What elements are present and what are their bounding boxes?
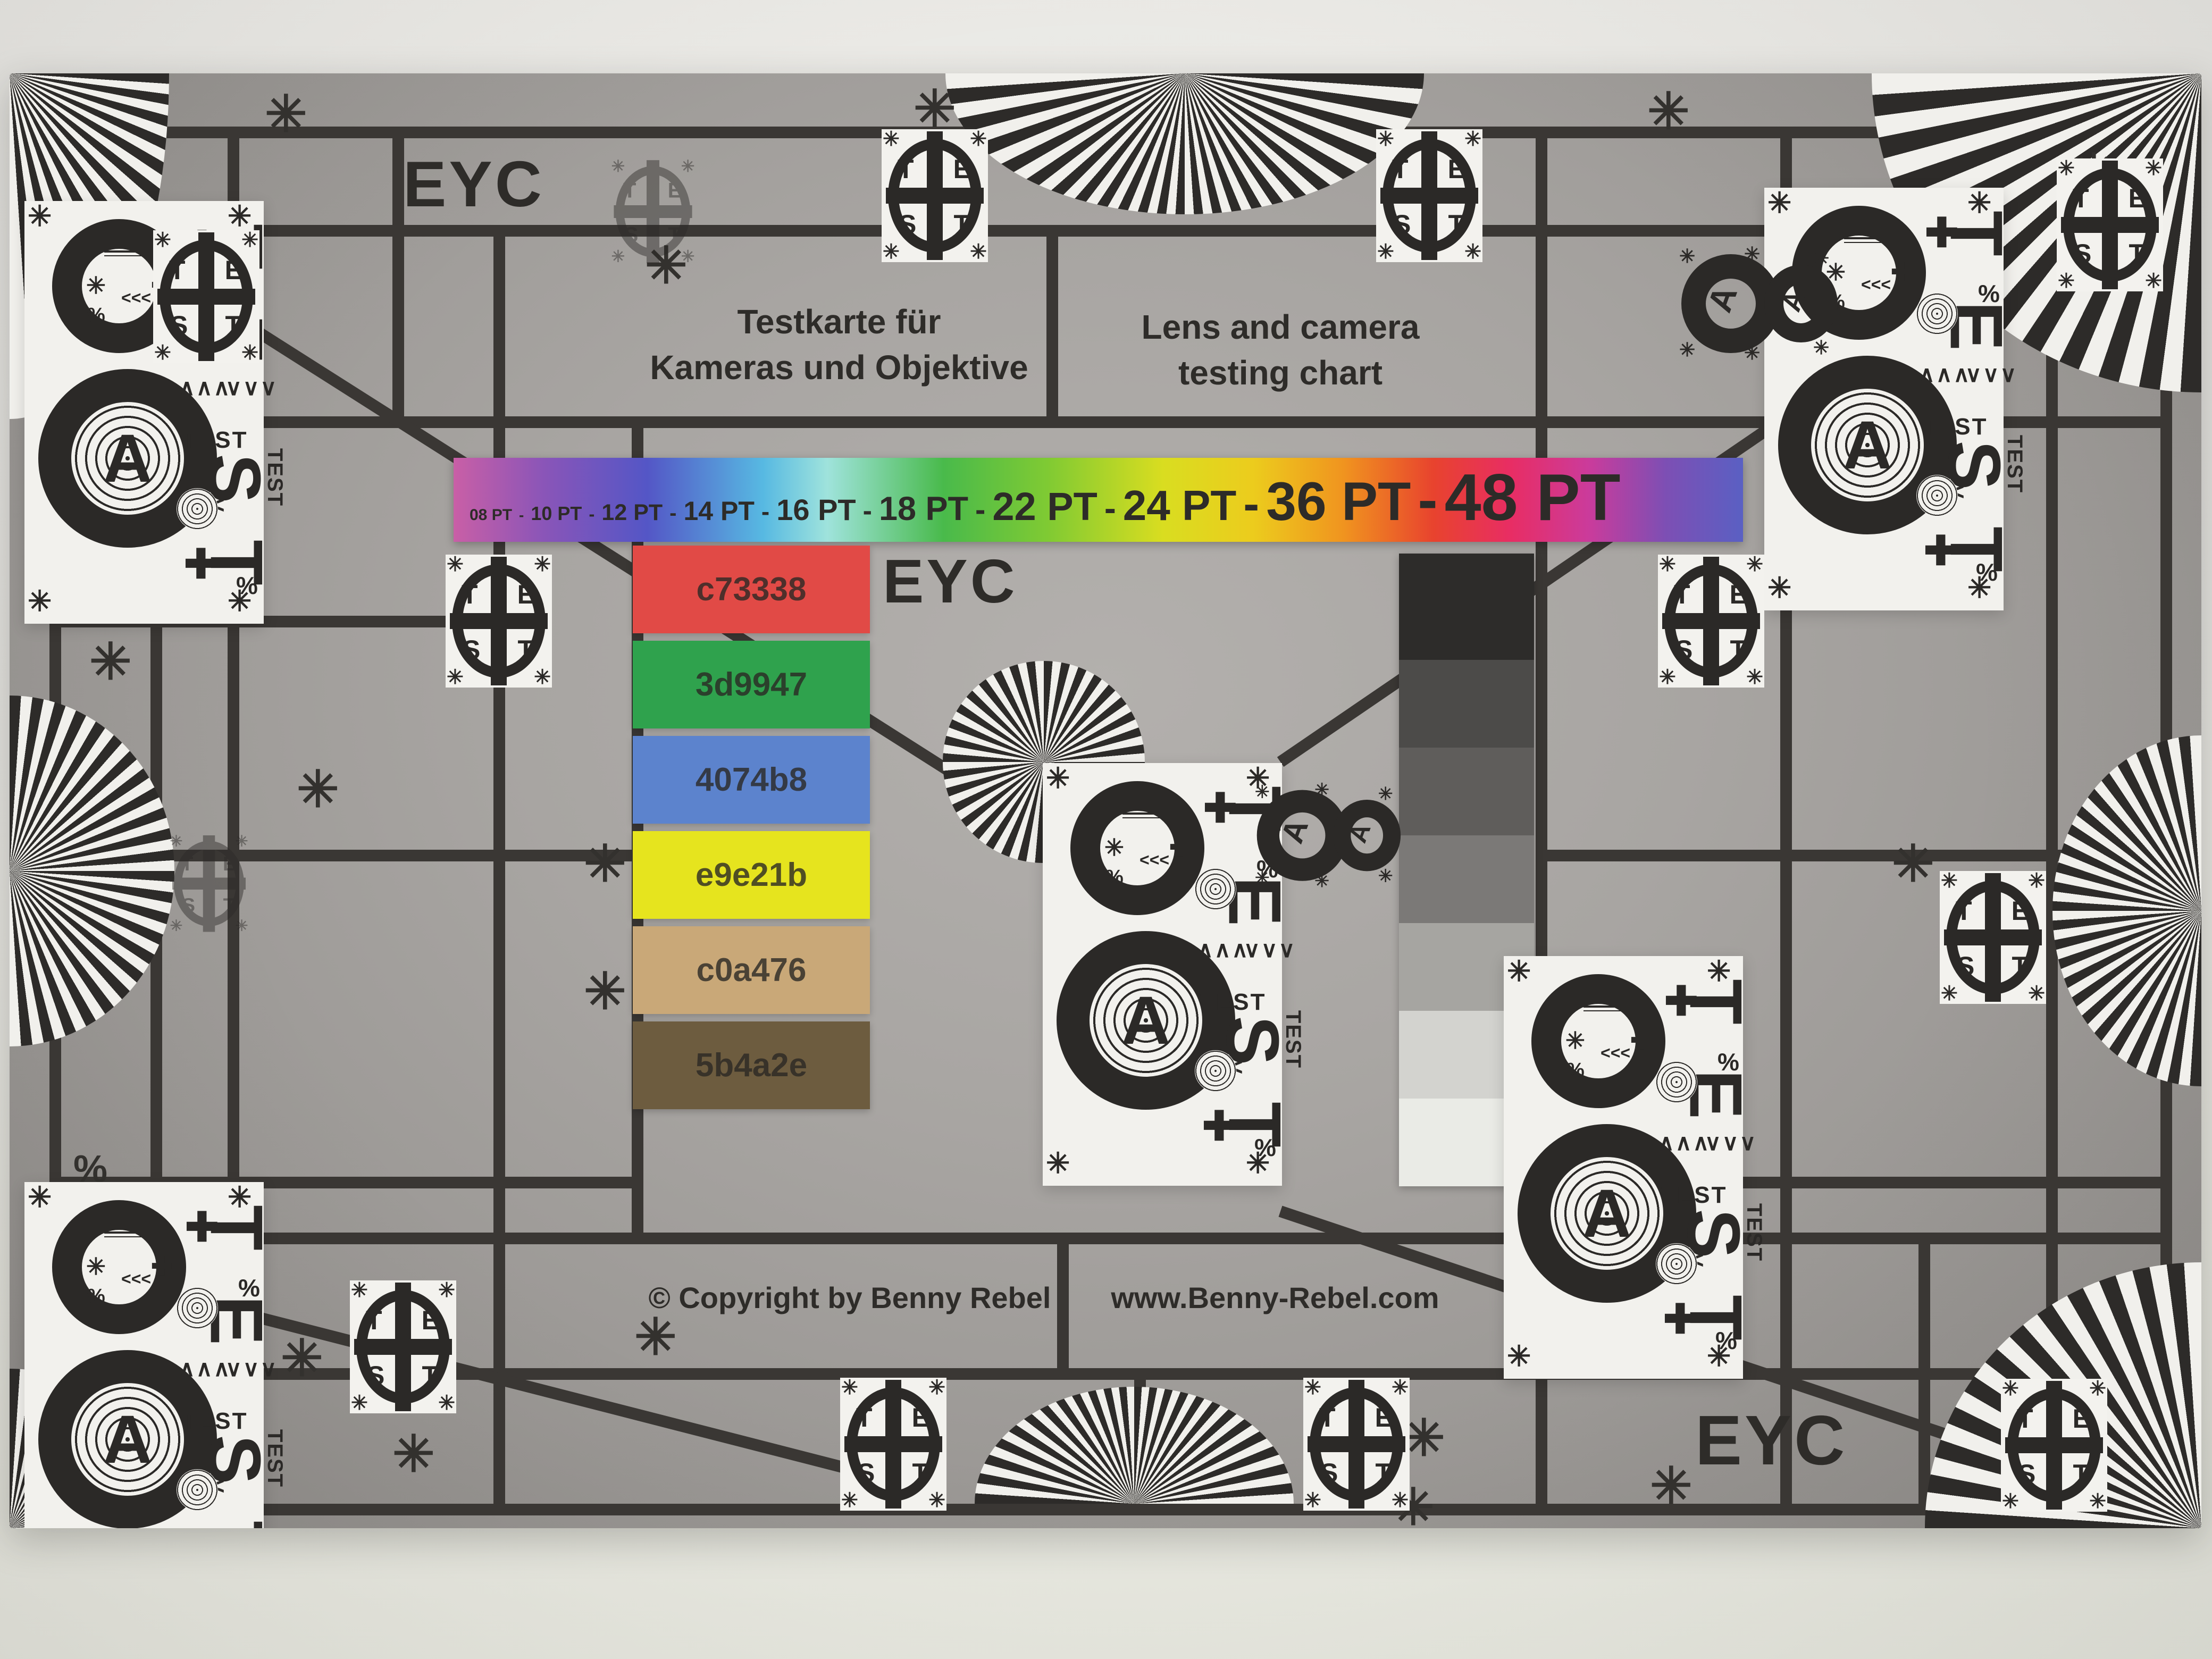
asterisk-icon: ✳ <box>2145 271 2162 291</box>
asterisk-mark: ✳ <box>265 89 307 140</box>
pt-sep: - <box>1243 477 1259 532</box>
percent-mark: % <box>1715 1328 1737 1353</box>
asterisk-icon: ✳ <box>1507 1342 1531 1371</box>
logo-letter: E <box>223 852 236 876</box>
eyc-marker-center: EYC <box>883 546 1018 617</box>
pt-sep: - <box>519 507 524 524</box>
asterisk-icon: ✳ <box>86 1255 106 1279</box>
asterisk-icon: ✳ <box>1255 869 1270 887</box>
asterisk-icon: ✳ <box>1813 249 1829 268</box>
test-logo-spot: ✳ ✳ ✳ ✳ T E S T <box>1658 555 1764 688</box>
asterisk-icon: ✳ <box>1744 343 1760 363</box>
test-word-rotated: TEST <box>1283 1010 1304 1069</box>
swatch-hex-label: 5b4a2e <box>696 1046 807 1084</box>
letter-a-target: A <box>1121 982 1170 1060</box>
spiral-target <box>1916 293 1958 334</box>
asterisk-icon: ✳ <box>2002 1379 2019 1399</box>
pt-label: 18 PT <box>879 490 968 528</box>
asterisk-mark: ✳ <box>584 839 626 890</box>
asterisk-icon: ✳ <box>447 555 464 575</box>
swatch-blue: 4074b8 <box>633 736 870 824</box>
asterisk-mark: ✳ <box>297 765 339 815</box>
asterisk-icon: ✳ <box>2089 1492 2106 1512</box>
eight-test-resolution-patch: ✳ ✳ ✳ ✳ ✳ % <<< ✚ A <<< ✚ T % E ∧∧∧ ∨∨∨ … <box>1043 763 1282 1186</box>
gray-step <box>1399 660 1534 748</box>
asterisk-icon: ✳ <box>2089 1379 2106 1399</box>
asterisk-icon: ✳ <box>1746 555 1763 575</box>
corner-patch-bottom-right: ✳ ✳ ✳ ✳ ✳ % <<< ✚ A <<< ✚ T % E ∧∧∧ ∨∨∨ … <box>1504 956 1743 1379</box>
logo-letter: E <box>912 1402 929 1433</box>
spiral-target <box>177 1287 218 1329</box>
logo-letter: E <box>953 154 971 185</box>
test-circle-logo: ✳ ✳ ✳ ✳ T E S T <box>1658 555 1764 688</box>
swatch-tan: c0a476 <box>633 926 870 1014</box>
arrows-mark: <<< <box>121 289 151 306</box>
asterisk-icon: ✳ <box>351 1280 368 1301</box>
asterisk-icon: ✳ <box>1046 764 1070 793</box>
logo-letter: S <box>857 1457 875 1488</box>
test-logo-spot: ✳ ✳ ✳ ✳ T E S T <box>350 1280 456 1413</box>
test-logo-spot: ✳ ✳ ✳ ✳ T E S T <box>2001 1379 2107 1512</box>
test-circle-logo: ✳ ✳ ✳ ✳ T E S T <box>169 834 249 934</box>
logo-letter: T <box>912 1457 928 1488</box>
asterisk-icon: ✳ <box>883 242 900 262</box>
logo-letter: T <box>2012 951 2028 982</box>
asterisk-icon: ✳ <box>1941 871 1958 891</box>
test-word-rotated: TEST <box>2004 435 2025 493</box>
test-word: TEST <box>1661 1184 1727 1207</box>
pt-sep: - <box>863 495 872 527</box>
resolution-hatch-lines <box>1844 223 1893 243</box>
test-circle-logo: ✳ ✳ ✳ ✳ T E S T <box>2057 158 2163 291</box>
logo-letter: S <box>2018 1459 2035 1489</box>
test-logo-spot-ghost: ✳ ✳ ✳ ✳ T E S T <box>169 834 249 934</box>
test-word-rotated: TEST <box>264 1429 286 1488</box>
asterisk-mark: ✳ <box>584 967 626 1017</box>
test-logo-spot: ✳ ✳ ✳ ✳ T E S T <box>882 129 988 262</box>
asterisk-icon: ✳ <box>1378 785 1393 802</box>
gray-step <box>1399 554 1534 660</box>
asterisk-icon: ✳ <box>970 242 987 262</box>
resolution-hatch-lines <box>104 236 153 256</box>
asterisk-icon: ✳ <box>1767 574 1791 602</box>
asterisk-icon: ✳ <box>681 158 694 174</box>
concentric-rings-target: A <box>1092 966 1200 1075</box>
logo-letter: S <box>1393 209 1411 240</box>
concentric-rings-target: A <box>73 404 182 513</box>
percent-mark: % <box>1254 1135 1276 1160</box>
pt-sep: - <box>1418 465 1437 534</box>
chevrons-down: ∨∨∨ <box>1244 939 1296 961</box>
test-circle-logo: ✳ ✳ ✳ ✳ T E S T <box>1376 129 1482 262</box>
asterisk-icon: ✳ <box>1255 783 1270 801</box>
test-circle-logo: ✳ ✳ ✳ ✳ T E S T <box>350 1280 456 1413</box>
eight-aa-badge: A A ✳ ✳ ✳ ✳ ✳ ✳ <box>1679 249 1839 361</box>
asterisk-icon: ✳ <box>241 343 258 363</box>
test-letter-rotated: T <box>199 1521 274 1528</box>
test-word: TEST <box>1922 415 1988 439</box>
concentric-rings-target: A <box>73 1385 182 1494</box>
test-circle-logo: ✳ ✳ ✳ ✳ T E S T <box>2001 1379 2107 1512</box>
asterisk-icon: ✳ <box>351 1393 368 1413</box>
asterisk-icon: ✳ <box>1659 667 1676 688</box>
eyc-marker-bottom-right: EYC <box>1695 1400 1847 1480</box>
asterisk-icon: ✳ <box>438 1280 455 1301</box>
asterisk-icon: ✳ <box>1767 189 1791 217</box>
resolution-hatch-lines <box>1122 798 1171 818</box>
logo-letter: T <box>898 154 914 185</box>
percent-mark: % <box>87 1286 105 1306</box>
logo-letter: T <box>623 178 636 203</box>
asterisk-icon: ✳ <box>28 202 52 231</box>
logo-letter: S <box>1320 1457 1338 1488</box>
letter-a-target: A <box>103 420 152 498</box>
plus-cross-icon: ✚ <box>1630 1028 1652 1054</box>
test-logo-spot: ✳ ✳ ✳ ✳ T E S T <box>1376 129 1482 262</box>
logo-letter: T <box>2073 1459 2089 1489</box>
swatch-yellow: e9e21b <box>633 831 870 919</box>
asterisk-icon: ✳ <box>170 834 183 849</box>
chevrons-down: ∨∨∨ <box>225 1358 278 1380</box>
logo-letter: T <box>517 634 534 665</box>
swatch-hex-label: 4074b8 <box>696 761 807 799</box>
pt-sep: - <box>589 504 594 524</box>
arrows-mark: <<< <box>121 1270 151 1287</box>
badge-spot: A A ✳ ✳ ✳ ✳ ✳ ✳ <box>1679 249 1839 361</box>
plus-cross-icon: ✚ <box>151 1254 172 1280</box>
asterisk-icon: ✳ <box>1304 1490 1321 1511</box>
test-circle-logo: ✳ ✳ ✳ ✳ T E S T <box>882 129 988 262</box>
logo-letter: T <box>953 209 970 240</box>
asterisk-mark: ✳ <box>1650 1461 1692 1512</box>
logo-letter: E <box>1375 1402 1393 1433</box>
percent-mark: % <box>1566 1060 1585 1080</box>
logo-cross-horizontal <box>2005 1437 2103 1453</box>
test-logo-spot: ✳ ✳ ✳ ✳ T E S T <box>2057 158 2163 291</box>
logo-letter: E <box>1730 579 1747 610</box>
logo-letter: T <box>1319 1402 1336 1433</box>
asterisk-icon: ✳ <box>1679 340 1695 359</box>
eight-test-resolution-patch: ✳ ✳ ✳ ✳ ✳ % <<< ✚ A <<< ✚ T % E ∧∧∧ ∨∨∨ … <box>1504 956 1743 1379</box>
spiral-target <box>1195 868 1236 910</box>
badge-spot: A A ✳ ✳ ✳ ✳ ✳ ✳ <box>1255 785 1402 887</box>
arrows-mark: <<< <box>1601 1044 1630 1061</box>
resolution-hatch-lines <box>111 324 150 340</box>
asterisk-icon: ✳ <box>1304 1378 1321 1398</box>
asterisk-icon: ✳ <box>1377 129 1394 149</box>
corner-patch-bottom-left: ✳ ✳ ✳ ✳ ✳ % <<< ✚ A <<< ✚ T % E ∧∧∧ ∨∨∨ … <box>24 1182 264 1528</box>
asterisk-icon: ✳ <box>841 1490 858 1511</box>
title-german-line2: Kameras und Objektive <box>632 345 1046 391</box>
concentric-rings-target: A <box>1553 1159 1661 1268</box>
logo-letter: T <box>169 255 186 286</box>
resolution-hatch-lines <box>1129 886 1168 902</box>
asterisk-icon: ✳ <box>438 1393 455 1413</box>
swatch-brown: 5b4a2e <box>633 1021 870 1109</box>
asterisk-mark: ✳ <box>914 84 956 135</box>
asterisk-mark: ✳ <box>1892 839 1934 890</box>
eight-test-resolution-patch: ✳ ✳ ✳ ✳ ✳ % <<< ✚ A <<< ✚ T % E ∧∧∧ ∨∨∨ … <box>24 1182 264 1528</box>
asterisk-icon: ✳ <box>2002 1492 2019 1512</box>
asterisk-icon: ✳ <box>1046 1149 1070 1178</box>
asterisk-icon: ✳ <box>28 1183 52 1212</box>
asterisk-icon: ✳ <box>154 343 171 363</box>
percent-mark: % <box>1105 867 1124 887</box>
center-patch: ✳ ✳ ✳ ✳ ✳ % <<< ✚ A <<< ✚ T % E ∧∧∧ ∨∨∨ … <box>1043 763 1282 1186</box>
logo-letter: E <box>2073 1403 2090 1434</box>
resolution-hatch-lines <box>1583 991 1632 1011</box>
pt-label: 12 PT <box>601 500 663 526</box>
test-circle-logo: ✳ ✳ ✳ ✳ T E S T <box>610 158 696 265</box>
percent-mark: % <box>236 573 258 598</box>
spiral-target <box>1195 1050 1236 1092</box>
logo-letter: T <box>1448 209 1464 240</box>
title-german-line1: Testkarte für <box>632 299 1046 345</box>
pt-label: 24 PT <box>1123 481 1236 530</box>
logo-letter: E <box>1448 154 1465 185</box>
pt-label: 22 PT <box>992 484 1097 529</box>
swatch-hex-label: 3d9947 <box>696 666 807 703</box>
title-english-line1: Lens and camera <box>1046 305 1514 350</box>
swatch-hex-label: c0a476 <box>697 951 807 989</box>
logo-letter: S <box>367 1360 384 1391</box>
gray-step <box>1399 748 1534 835</box>
logo-cross-horizontal <box>2061 217 2159 233</box>
logo-letter: T <box>2017 1403 2033 1434</box>
arrows-mark: <<< <box>1139 851 1169 868</box>
asterisk-icon: ✳ <box>1813 338 1829 357</box>
asterisk-icon: ✳ <box>1464 242 1481 262</box>
logo-letter: E <box>422 1305 439 1336</box>
asterisk-icon: ✳ <box>883 129 900 149</box>
asterisk-mark: ✳ <box>281 1334 323 1384</box>
eyc-marker-top-left: EYC <box>403 147 544 221</box>
logo-letter: S <box>899 209 916 240</box>
logo-cross-horizontal <box>614 205 692 218</box>
gray-step <box>1399 835 1534 923</box>
spiral-target <box>1916 475 1958 516</box>
logo-letter: T <box>2129 238 2145 269</box>
pt-label: 16 PT <box>776 492 856 527</box>
pt-size-labels: 08 PT- 10 PT- 12 PT- 14 PT- 16 PT- 18 PT… <box>470 460 1627 535</box>
title-german: Testkarte für Kameras und Objektive <box>632 299 1046 391</box>
pt-label: 08 PT <box>470 506 512 524</box>
title-english-line2: testing chart <box>1046 350 1514 396</box>
logo-letter: T <box>366 1305 382 1336</box>
asterisk-mark: ✳ <box>634 1312 677 1363</box>
test-logo-spot-ghost: ✳ ✳ ✳ ✳ T E S T <box>610 158 696 265</box>
asterisk-icon: ✳ <box>928 1490 945 1511</box>
test-logo-spot: ✳ ✳ ✳ ✳ T E S T <box>840 1378 946 1511</box>
logo-letter: T <box>1392 154 1409 185</box>
photo-of-test-chart-on-wall: { "eyc":{"top_left":"EYC","center":"EYC"… <box>0 0 2212 1659</box>
resolution-hatch-lines <box>104 1217 153 1237</box>
logo-letter: E <box>225 255 242 286</box>
test-word: TEST <box>182 1410 248 1433</box>
test-logo-spot: ✳ ✳ ✳ ✳ T E S T <box>1303 1378 1410 1511</box>
logo-letter: S <box>1957 951 1974 982</box>
asterisk-icon: ✳ <box>1378 867 1393 885</box>
swatch-green: 3d9947 <box>633 641 870 728</box>
logo-letter: S <box>1675 634 1692 665</box>
asterisk-icon: ✳ <box>841 1378 858 1398</box>
asterisk-icon: ✳ <box>236 834 248 849</box>
spiral-target <box>1656 1243 1697 1285</box>
asterisk-icon: ✳ <box>1377 242 1394 262</box>
asterisk-icon: ✳ <box>447 667 464 688</box>
test-circle-logo: ✳ ✳ ✳ ✳ T E S T <box>153 230 259 363</box>
asterisk-icon: ✳ <box>2028 871 2045 891</box>
test-circle-logo: ✳ ✳ ✳ ✳ T E S T <box>446 555 552 688</box>
asterisk-icon: ✳ <box>1679 247 1695 266</box>
test-circle-logo: ✳ ✳ ✳ ✳ T E S T <box>1303 1378 1410 1511</box>
chevrons-down: ∨∨∨ <box>1965 363 2017 386</box>
letter-a-target: A <box>1582 1175 1631 1253</box>
arrows-mark: <<< <box>1861 276 1891 293</box>
asterisk-icon: ✳ <box>241 230 258 250</box>
test-word: TEST <box>182 429 248 452</box>
test-word-rotated: TEST <box>264 448 286 507</box>
asterisk-icon: ✳ <box>2028 984 2045 1004</box>
asterisk-icon: ✳ <box>86 274 106 298</box>
logo-cross-horizontal <box>844 1436 942 1452</box>
chevrons-up: ∧∧∧ <box>1197 939 1249 961</box>
logo-letter: T <box>225 310 241 341</box>
logo-letter: T <box>856 1402 873 1433</box>
pt-label: 36 PT <box>1266 471 1411 533</box>
asterisk-icon: ✳ <box>1507 957 1531 986</box>
asterisk-icon: ✳ <box>611 158 625 174</box>
test-logo-spot: ✳ ✳ ✳ ✳ T E S T <box>446 555 552 688</box>
pt-sep: - <box>1104 488 1116 528</box>
asterisk-icon: ✳ <box>2058 271 2075 291</box>
plus-cross-icon: ✚ <box>1169 835 1191 861</box>
pt-label: 48 PT <box>1445 460 1621 535</box>
asterisk-icon: ✳ <box>154 230 171 250</box>
resolution-hatch-lines <box>111 1305 150 1321</box>
asterisk-icon: ✳ <box>611 249 625 265</box>
logo-cross-horizontal <box>1944 929 2042 945</box>
logo-letter: T <box>422 1360 438 1391</box>
spiral-target <box>1656 1061 1697 1103</box>
logo-cross-horizontal <box>172 878 246 890</box>
asterisk-mark: ✳ <box>89 637 132 688</box>
logo-letter: T <box>1375 1457 1392 1488</box>
asterisk-icon: ✳ <box>1746 667 1763 688</box>
plus-cross-icon: ✚ <box>1891 260 1912 286</box>
website-text: www.Benny-Rebel.com <box>1094 1280 1456 1315</box>
chevrons-down: ∨∨∨ <box>1705 1132 1757 1154</box>
swatch-hex-label: e9e21b <box>696 856 807 894</box>
logo-cross-horizontal <box>354 1339 452 1355</box>
logo-letter: E <box>2012 895 2029 926</box>
logo-cross-horizontal <box>1308 1436 1405 1452</box>
asterisk-icon: ✳ <box>2058 158 2075 179</box>
chevrons-up: ∧∧∧ <box>179 376 231 399</box>
swatch-red: c73338 <box>633 546 870 633</box>
asterisk-icon: ✳ <box>534 667 551 688</box>
swatch-hex-label: c73338 <box>697 571 807 608</box>
logo-cross-horizontal <box>450 613 548 629</box>
logo-letter: S <box>170 310 188 341</box>
pt-label: 14 PT <box>683 496 754 526</box>
eight-aa-badge: A A ✳ ✳ ✳ ✳ ✳ ✳ <box>1255 785 1402 887</box>
rainbow-font-size-bar: 08 PT- 10 PT- 12 PT- 14 PT- 16 PT- 18 PT… <box>454 458 1743 542</box>
letter-a-target: A <box>103 1401 152 1479</box>
logo-letter: T <box>462 579 478 610</box>
asterisk-icon: ✳ <box>28 587 52 616</box>
asterisk-icon: ✳ <box>928 1378 945 1398</box>
camera-test-chart: 08 PT- 10 PT- 12 PT- 14 PT- 16 PT- 18 PT… <box>10 73 2201 1528</box>
logo-letter: T <box>223 894 236 917</box>
chevrons-down: ∨∨∨ <box>225 376 278 399</box>
test-logo-spot: ✳ ✳ ✳ ✳ T E S T <box>153 230 259 363</box>
asterisk-icon: ✳ <box>534 555 551 575</box>
logo-letter: S <box>463 634 480 665</box>
logo-letter: E <box>2129 183 2146 214</box>
test-word: TEST <box>1200 991 1266 1014</box>
logo-cross-horizontal <box>1380 188 1478 204</box>
asterisk-icon: ✳ <box>1314 781 1329 799</box>
asterisk-icon: ✳ <box>1314 872 1329 890</box>
asterisk-mark: ✳ <box>392 1429 435 1480</box>
logo-letter: T <box>668 222 681 247</box>
logo-letter: S <box>2074 238 2091 269</box>
logo-cross-horizontal <box>1662 613 1760 629</box>
logo-letter: T <box>1730 634 1746 665</box>
chevrons-up: ∧∧∧ <box>179 1358 231 1380</box>
logo-letter: T <box>1674 579 1690 610</box>
asterisk-icon: ✳ <box>1744 245 1760 264</box>
logo-letter: T <box>2073 183 2089 214</box>
test-logo-spot: ✳ ✳ ✳ ✳ T E S T <box>1940 871 2046 1004</box>
percent-mark: % <box>1976 560 1998 584</box>
asterisk-icon: ✳ <box>1565 1029 1585 1053</box>
test-letter-rotated: T <box>1939 211 2014 256</box>
logo-letter: E <box>668 178 682 203</box>
asterisk-icon: ✳ <box>1392 1490 1409 1511</box>
letter-a-target: A <box>1843 406 1892 484</box>
spiral-target <box>177 488 218 530</box>
asterisk-icon: ✳ <box>236 918 248 934</box>
asterisk-icon: ✳ <box>970 129 987 149</box>
test-word-rotated: TEST <box>1744 1203 1765 1262</box>
logo-letter: E <box>517 579 535 610</box>
asterisk-icon: ✳ <box>1941 984 1958 1004</box>
asterisk-mark: ✳ <box>1647 87 1690 137</box>
asterisk-icon: ✳ <box>1464 129 1481 149</box>
chevrons-up: ∧∧∧ <box>1658 1132 1710 1154</box>
asterisk-icon: ✳ <box>2145 158 2162 179</box>
logo-letter: S <box>624 222 639 247</box>
asterisk-icon: ✳ <box>170 918 183 934</box>
percent-mark: % <box>87 305 105 325</box>
asterisk-icon: ✳ <box>1392 1378 1409 1398</box>
test-letter-rotated: T <box>199 1205 274 1251</box>
pt-sep: - <box>669 501 676 525</box>
asterisk-icon: ✳ <box>681 249 694 265</box>
test-circle-logo: ✳ ✳ ✳ ✳ T E S T <box>840 1378 946 1511</box>
asterisk-icon: ✳ <box>1659 555 1676 575</box>
pt-sep: - <box>975 492 985 527</box>
copyright-text: © Copyright by Benny Rebel <box>648 1280 1052 1315</box>
spiral-target <box>177 1469 218 1511</box>
logo-letter: S <box>182 894 195 917</box>
pt-label: 10 PT <box>531 502 582 525</box>
logo-cross-horizontal <box>886 188 984 204</box>
logo-cross-horizontal <box>157 289 255 305</box>
pt-sep: - <box>761 497 769 526</box>
